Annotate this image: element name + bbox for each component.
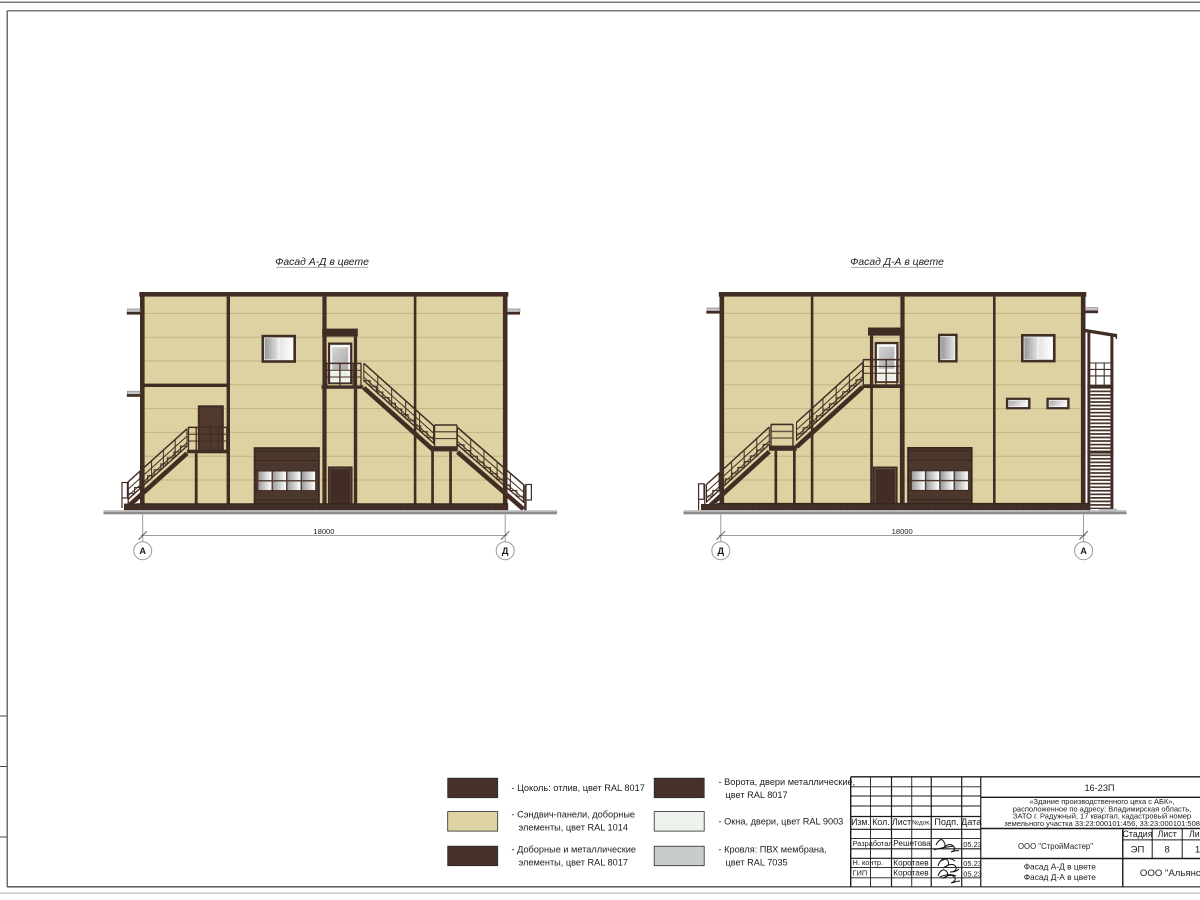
svg-text:элементы, цвет RAL 1014: элементы, цвет RAL 1014 (519, 823, 629, 833)
svg-text:Дата: Дата (961, 817, 982, 827)
svg-text:- Кровля: ПВХ мембрана,: - Кровля: ПВХ мембрана, (719, 845, 827, 855)
svg-text:Фасад А-Д в цвете: Фасад А-Д в цвете (275, 257, 369, 268)
svg-text:Лис: Лис (1189, 829, 1200, 839)
svg-text:- Ворота, двери металлические,: - Ворота, двери металлические, (719, 777, 856, 787)
svg-text:Н. контр.: Н. контр. (853, 858, 884, 867)
svg-text:Фасад Д-А в цвете: Фасад Д-А в цвете (1024, 872, 1097, 882)
svg-text:05.23: 05.23 (963, 869, 982, 878)
svg-text:цвет RAL 8017: цвет RAL 8017 (726, 790, 788, 800)
svg-text:05.23: 05.23 (963, 859, 982, 868)
svg-text:- Доборные и металлические: - Доборные и металлические (512, 845, 637, 855)
svg-text:ООО "СтройМастер": ООО "СтройМастер" (1018, 842, 1093, 851)
svg-text:Лист: Лист (1158, 829, 1177, 839)
svg-text:1: 1 (1195, 845, 1200, 856)
svg-text:элементы, цвет RAL 8017: элементы, цвет RAL 8017 (519, 858, 629, 868)
svg-text:Подп.: Подп. (934, 817, 958, 827)
svg-text:Фасад Д-А в цвете: Фасад Д-А в цвете (850, 257, 944, 268)
svg-text:Изм.: Изм. (851, 817, 870, 827)
svg-text:А: А (139, 546, 146, 556)
svg-text:ГИП: ГИП (853, 868, 868, 877)
svg-text:ООО "Альянс": ООО "Альянс" (1140, 868, 1200, 879)
svg-text:А: А (1080, 546, 1087, 556)
svg-text:18000: 18000 (892, 527, 913, 536)
svg-text:18000: 18000 (313, 527, 334, 536)
svg-text:- Цоколь: отлив, цвет RAL 8017: - Цоколь: отлив, цвет RAL 8017 (512, 783, 645, 793)
svg-text:8: 8 (1165, 845, 1170, 856)
svg-text:Разработал: Разработал (853, 839, 893, 848)
svg-text:05.23: 05.23 (963, 840, 982, 849)
svg-text:№док.: №док. (912, 820, 931, 827)
svg-text:Коротаев: Коротаев (893, 858, 928, 867)
svg-text:- Окна, двери, цвет RAL 9003: - Окна, двери, цвет RAL 9003 (719, 817, 844, 827)
svg-text:Д: Д (718, 546, 725, 556)
svg-text:земельного участка 33:23:00010: земельного участка 33:23:000101:456, 33:… (1004, 819, 1200, 828)
svg-text:Стадия: Стадия (1123, 829, 1153, 839)
svg-text:Лист: Лист (892, 817, 911, 827)
svg-text:Коротаев: Коротаев (893, 869, 928, 878)
svg-text:Фасад А-Д в цвете: Фасад А-Д в цвете (1024, 862, 1097, 872)
svg-text:цвет RAL 7035: цвет RAL 7035 (726, 858, 788, 868)
svg-text:16-23П: 16-23П (1084, 783, 1114, 793)
svg-text:ЭП: ЭП (1131, 845, 1145, 856)
svg-text:Кол.: Кол. (872, 817, 889, 827)
svg-text:Д: Д (502, 546, 509, 556)
svg-text:- Сэндвич-панели, доборные: - Сэндвич-панели, доборные (512, 810, 636, 820)
svg-text:Решетова: Решетова (893, 839, 931, 848)
